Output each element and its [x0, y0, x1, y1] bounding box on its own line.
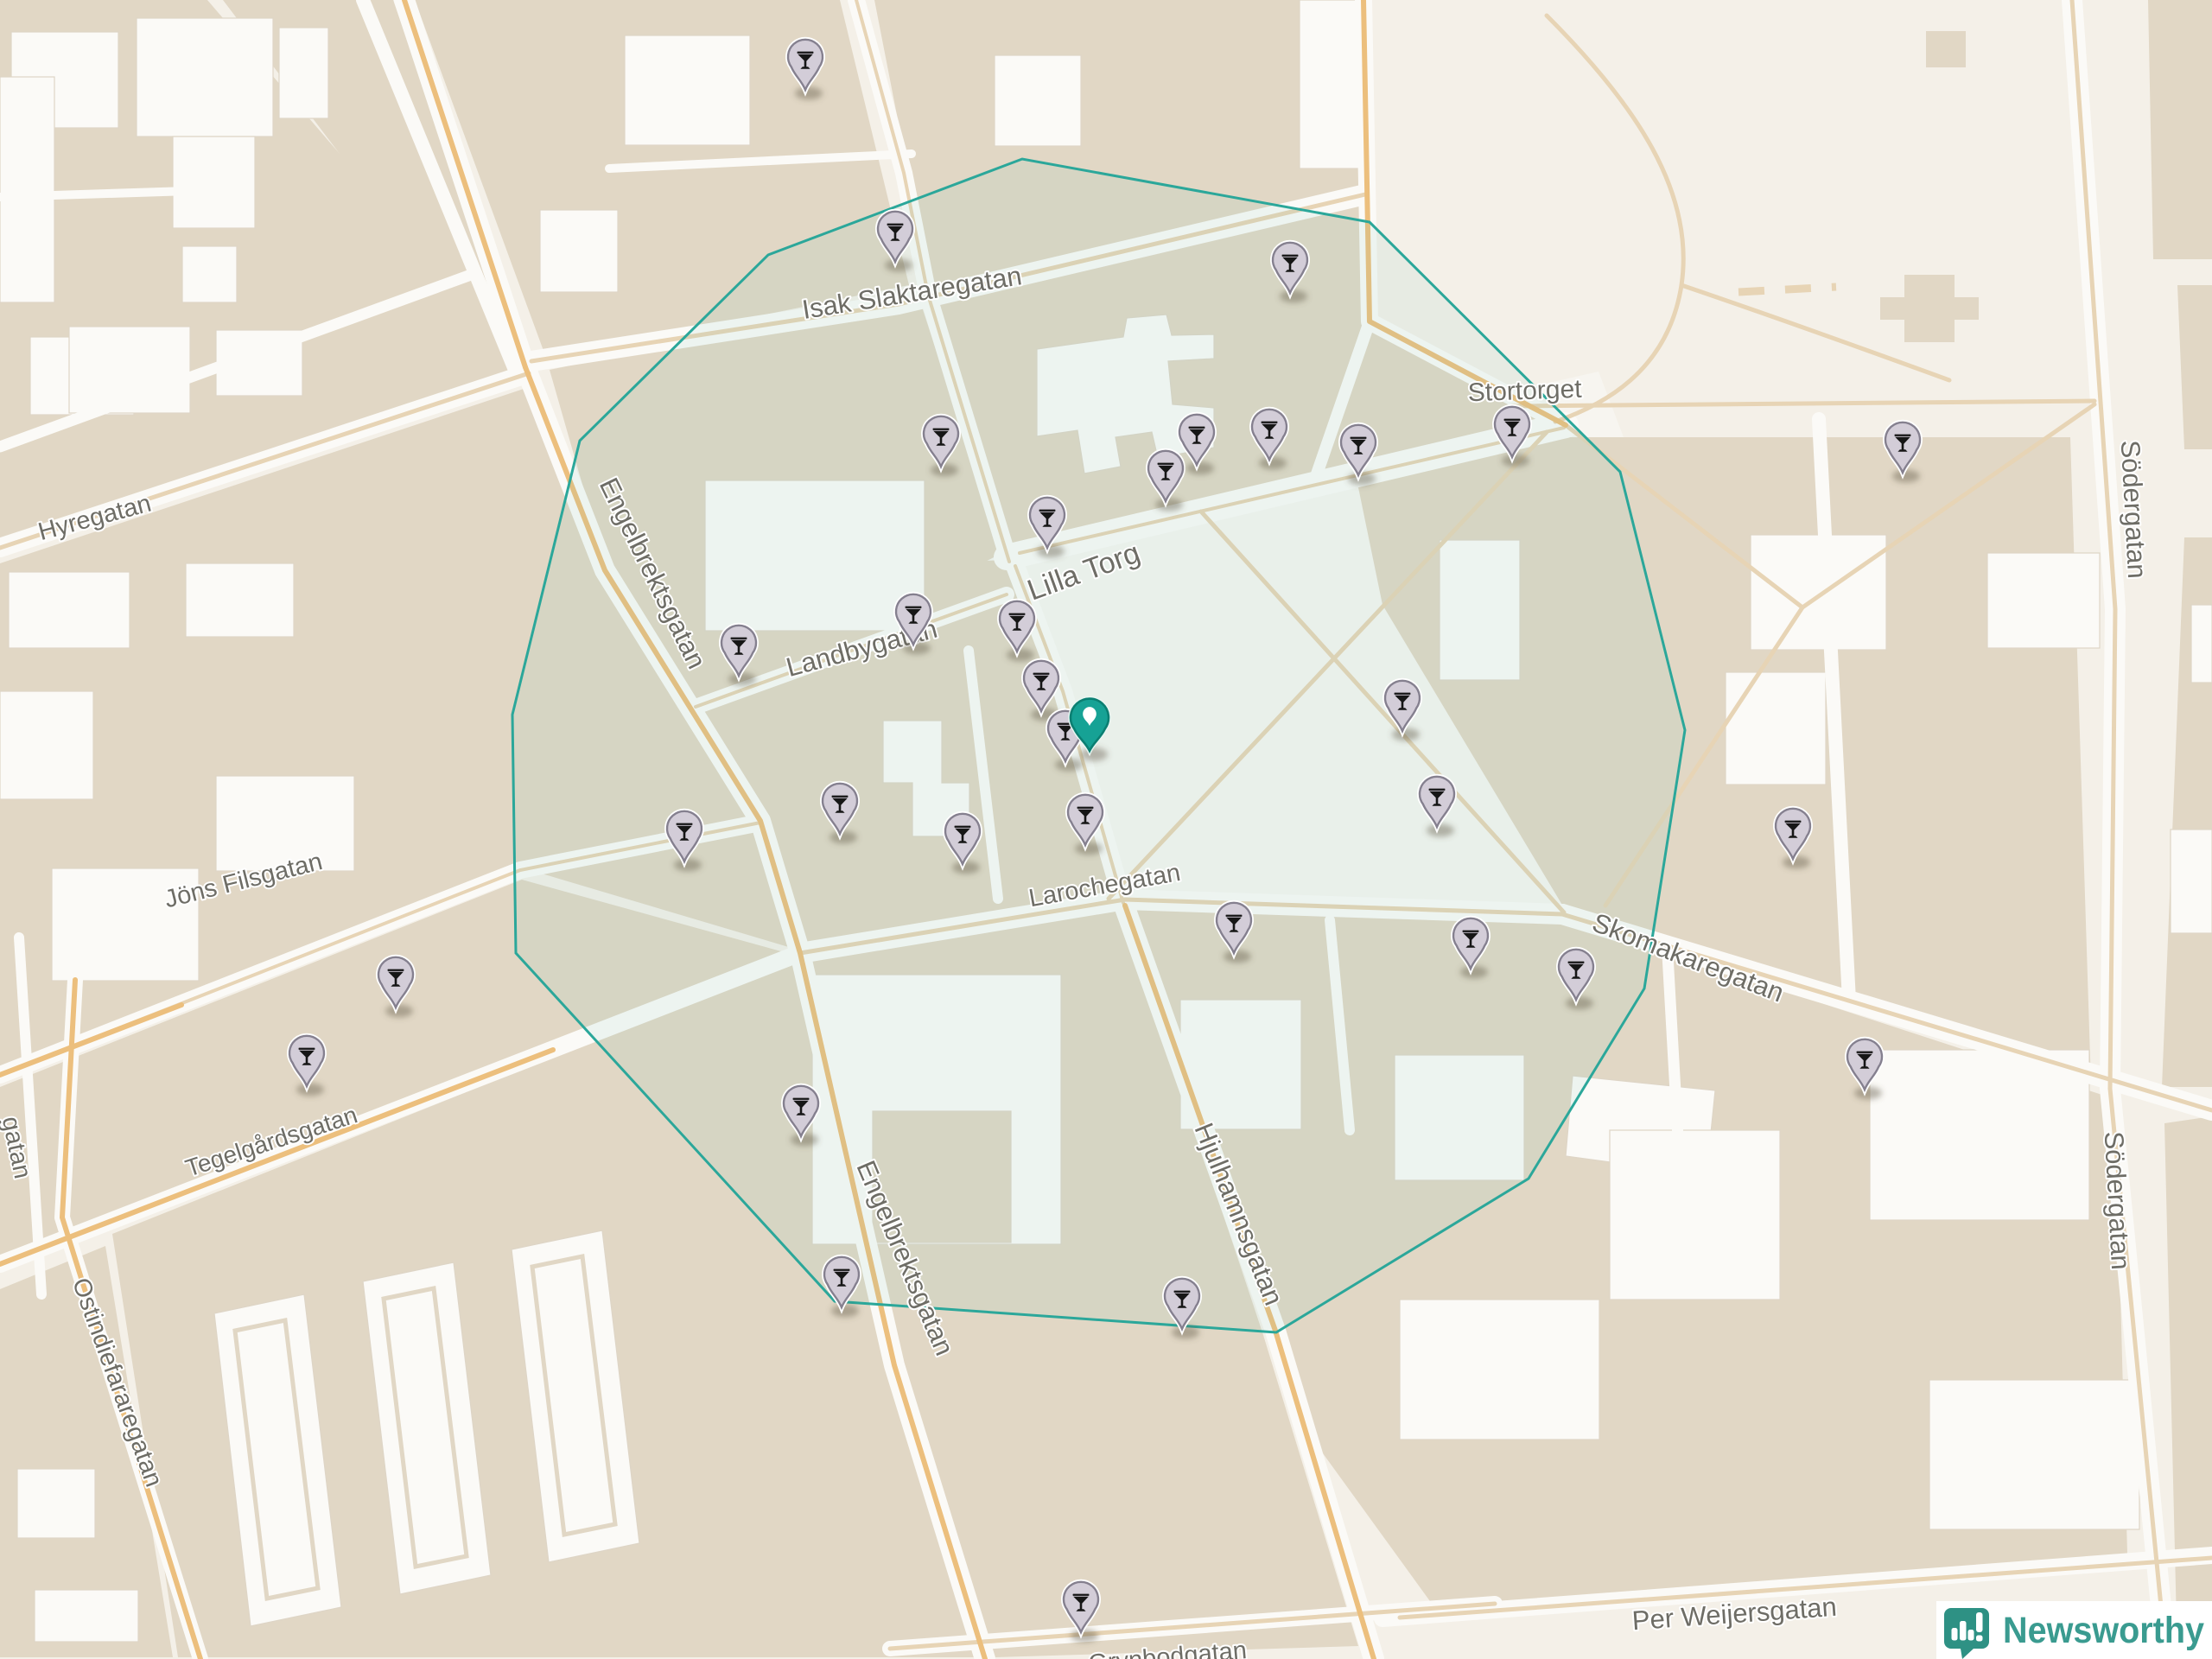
svg-text:Stortorget: Stortorget [1467, 375, 1582, 408]
svg-text:Newsworthy: Newsworthy [2003, 1610, 2204, 1651]
